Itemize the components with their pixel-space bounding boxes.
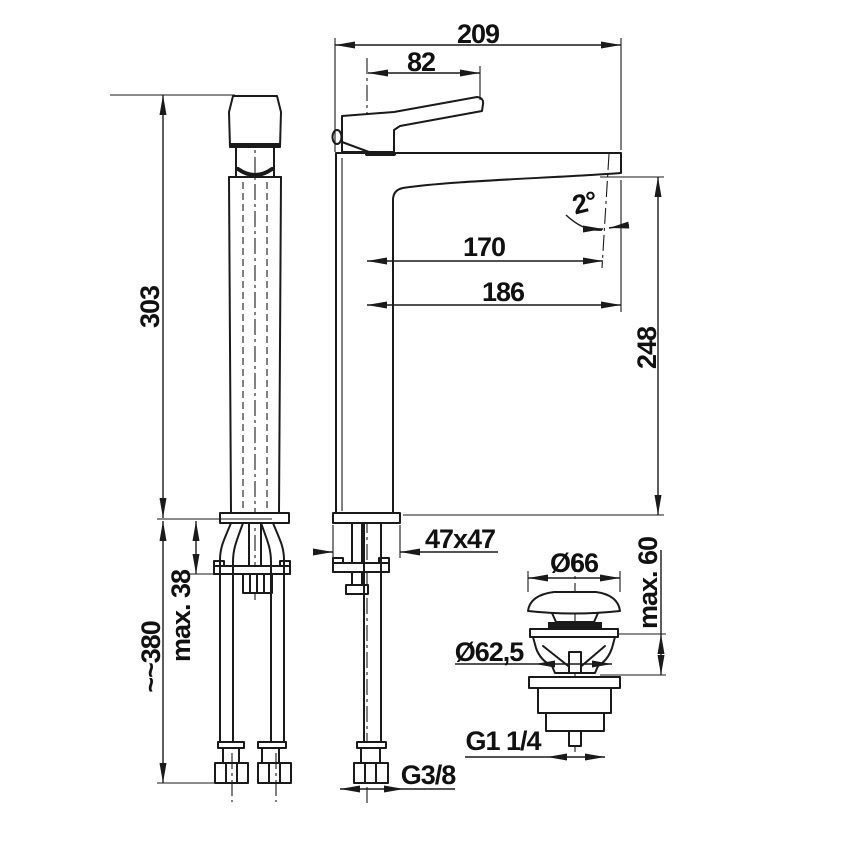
technical-drawing-page: 209 82 303 max. 38 ~~380 170 186 2° 248 … — [0, 0, 868, 868]
dim-plug-clamp-max: max. 60 — [633, 537, 663, 629]
dim-plug-body-diameter: Ø62,5 — [455, 637, 525, 667]
front-handle-pivot — [333, 130, 342, 144]
dim-mounting-max-thickness: max. 38 — [166, 569, 196, 662]
drain-flange — [530, 629, 618, 637]
side-mounting-washer — [214, 566, 290, 574]
dim-outlet-angle: 2° — [569, 186, 600, 221]
dim-lever-length: 82 — [407, 47, 435, 77]
drain-thread-section — [546, 713, 604, 731]
front-hose-nut — [354, 763, 388, 783]
side-base-flange — [220, 513, 289, 523]
drain-body — [538, 688, 611, 713]
side-view — [214, 96, 291, 802]
front-base-flange — [333, 513, 400, 523]
dim-overall-length: 209 — [457, 19, 500, 49]
faucet-technical-drawing: 209 82 303 max. 38 ~~380 170 186 2° 248 … — [0, 0, 868, 868]
dim-spout-reach-overall: 186 — [482, 277, 525, 307]
dim-base-cross-section: 47x47 — [425, 524, 495, 554]
side-hose-right — [273, 523, 284, 742]
side-hose-left — [220, 523, 231, 742]
side-hose-nut-right — [258, 763, 291, 783]
drain-seal-ring — [548, 622, 602, 629]
dim-plug-cap-diameter: Ø66 — [550, 548, 599, 578]
angle-arrows — [609, 225, 629, 228]
drain-plug-view — [528, 556, 620, 752]
drain-cap — [528, 592, 620, 614]
dim-hose-length: ~~380 — [136, 621, 166, 693]
side-body-column — [229, 177, 231, 513]
drain-lower-flange — [529, 677, 620, 688]
dim-plug-thread: G1 1/4 — [465, 726, 541, 756]
dim-supply-thread: G3/8 — [401, 760, 457, 790]
dim-spout-reach-to-axis: 170 — [463, 232, 505, 262]
drain-stem — [569, 731, 581, 746]
dim-outlet-height: 248 — [632, 326, 662, 369]
front-lever-handle — [342, 97, 483, 152]
dim-body-height: 303 — [135, 285, 165, 328]
side-handle-cap — [229, 96, 281, 147]
